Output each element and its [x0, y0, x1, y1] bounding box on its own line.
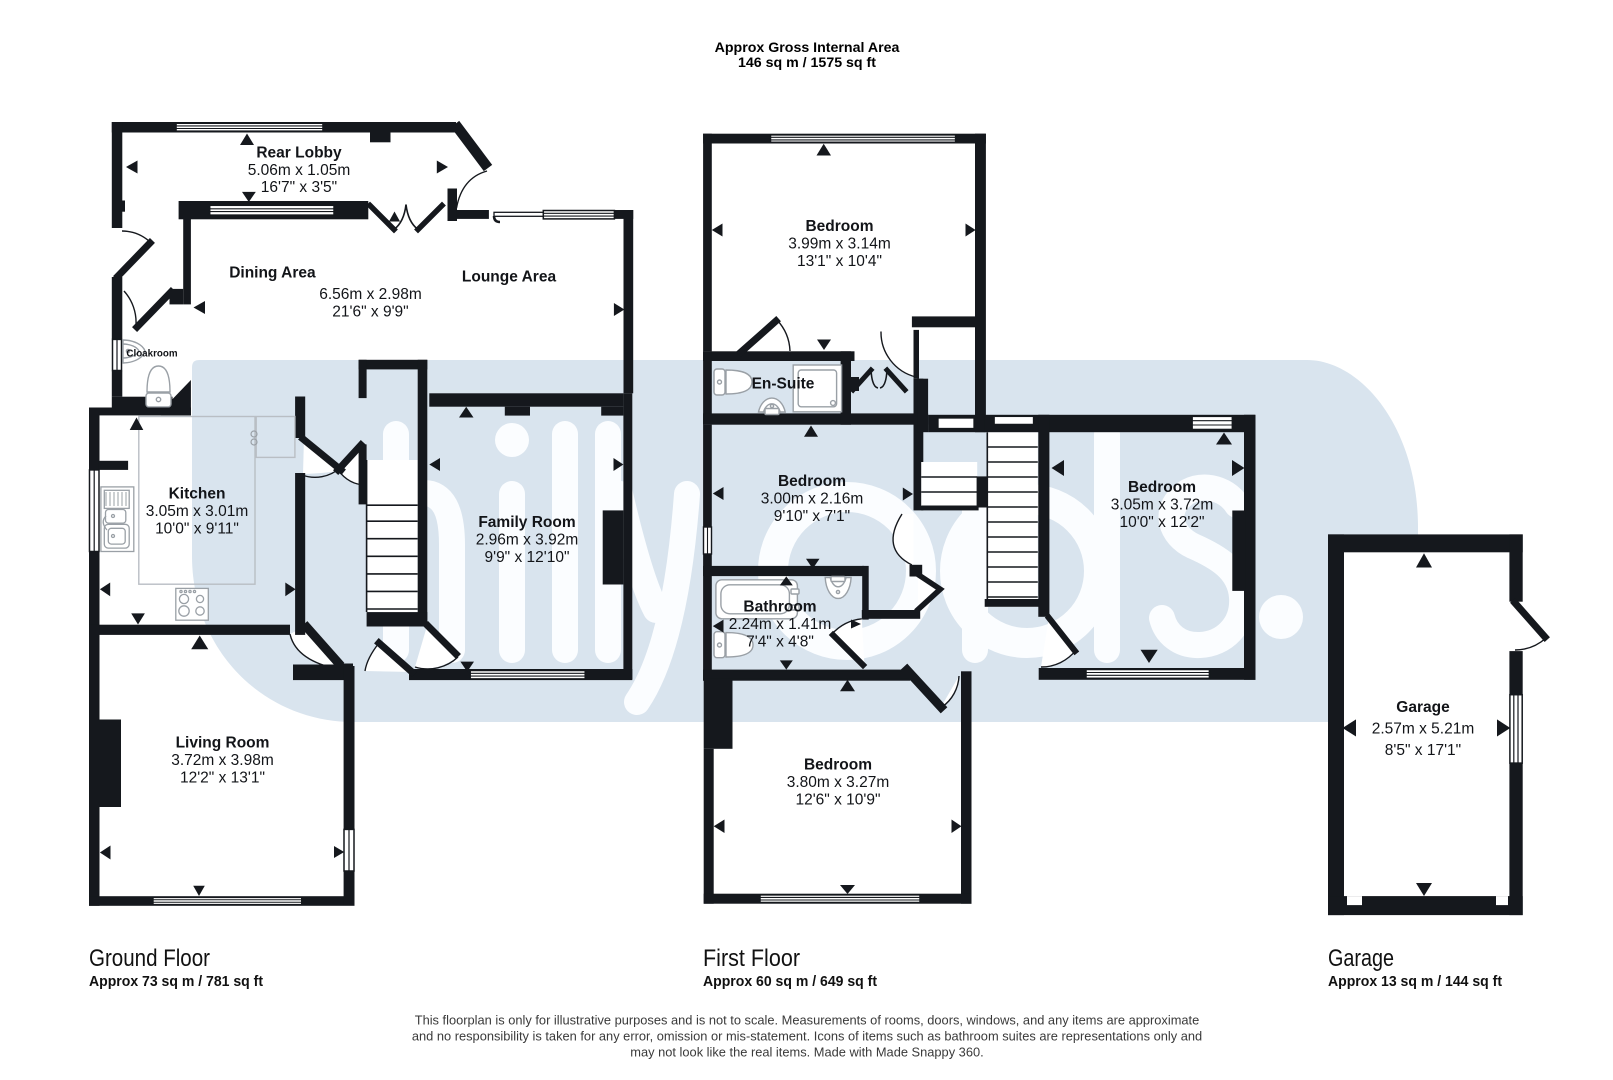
- svg-text:Living Room: Living Room: [176, 735, 270, 752]
- svg-text:Bathroom: Bathroom: [743, 599, 816, 616]
- svg-text:Bedroom: Bedroom: [804, 757, 872, 774]
- svg-text:Bedroom: Bedroom: [778, 473, 846, 490]
- svg-text:6.56m x 2.98m: 6.56m x 2.98m: [319, 286, 422, 303]
- svg-text:Garage: Garage: [1328, 945, 1394, 972]
- svg-text:3.99m x 3.14m: 3.99m x 3.14m: [788, 236, 891, 253]
- svg-text:5.06m x 1.05m: 5.06m x 1.05m: [248, 162, 351, 179]
- svg-text:may not look like the real ite: may not look like the real items. Made w…: [630, 1045, 983, 1060]
- svg-text:Family Room: Family Room: [478, 514, 575, 531]
- svg-text:Cloakroom: Cloakroom: [126, 349, 177, 360]
- svg-text:146 sq m / 1575 sq ft: 146 sq m / 1575 sq ft: [738, 55, 876, 71]
- svg-text:Approx 13 sq m / 144 sq ft: Approx 13 sq m / 144 sq ft: [1328, 973, 1502, 990]
- svg-text:9'9" x 12'10": 9'9" x 12'10": [484, 549, 569, 566]
- svg-text:12'6" x 10'9": 12'6" x 10'9": [795, 792, 880, 809]
- svg-text:En-Suite: En-Suite: [752, 376, 815, 393]
- svg-text:Garage: Garage: [1396, 699, 1450, 716]
- svg-text:Approx 73 sq m / 781 sq ft: Approx 73 sq m / 781 sq ft: [89, 973, 263, 990]
- svg-text:and no responsibility is taken: and no responsibility is taken for any e…: [412, 1029, 1202, 1044]
- svg-text:Lounge Area: Lounge Area: [462, 269, 557, 286]
- svg-text:Ground Floor: Ground Floor: [89, 945, 210, 972]
- svg-text:Bedroom: Bedroom: [1128, 479, 1196, 496]
- svg-text:12'2" x 13'1": 12'2" x 13'1": [180, 770, 265, 787]
- svg-text:2.96m x 3.92m: 2.96m x 3.92m: [476, 532, 579, 549]
- svg-text:8'5" x 17'1": 8'5" x 17'1": [1385, 742, 1461, 759]
- svg-text:16'7" x 3'5": 16'7" x 3'5": [261, 179, 337, 196]
- svg-text:2.57m x 5.21m: 2.57m x 5.21m: [1372, 721, 1475, 738]
- svg-text:Bedroom: Bedroom: [805, 218, 873, 235]
- svg-text:10'0" x 9'11": 10'0" x 9'11": [155, 521, 239, 538]
- svg-text:Approx 60 sq m / 649 sq ft: Approx 60 sq m / 649 sq ft: [703, 973, 877, 990]
- svg-text:13'1" x 10'4": 13'1" x 10'4": [797, 253, 882, 270]
- svg-text:3.00m x 2.16m: 3.00m x 2.16m: [761, 491, 864, 508]
- svg-text:3.80m x 3.27m: 3.80m x 3.27m: [787, 774, 890, 791]
- svg-text:First Floor: First Floor: [703, 945, 800, 972]
- svg-text:3.05m x 3.72m: 3.05m x 3.72m: [1111, 497, 1214, 514]
- svg-text:Kitchen: Kitchen: [169, 486, 226, 503]
- svg-text:7'4" x 4'8": 7'4" x 4'8": [746, 634, 814, 651]
- svg-text:3.05m x 3.01m: 3.05m x 3.01m: [146, 503, 249, 520]
- svg-text:Approx Gross Internal Area: Approx Gross Internal Area: [715, 40, 900, 56]
- svg-text:10'0" x 12'2": 10'0" x 12'2": [1119, 514, 1204, 531]
- svg-text:Rear Lobby: Rear Lobby: [256, 145, 342, 162]
- svg-text:21'6" x 9'9": 21'6" x 9'9": [332, 304, 408, 321]
- svg-text:9'10" x 7'1": 9'10" x 7'1": [774, 508, 850, 525]
- svg-text:This floorplan is only for ill: This floorplan is only for illustrative …: [415, 1013, 1200, 1028]
- svg-text:3.72m x 3.98m: 3.72m x 3.98m: [171, 752, 274, 769]
- svg-text:2.24m x 1.41m: 2.24m x 1.41m: [729, 616, 832, 633]
- svg-text:Dining Area: Dining Area: [229, 265, 316, 282]
